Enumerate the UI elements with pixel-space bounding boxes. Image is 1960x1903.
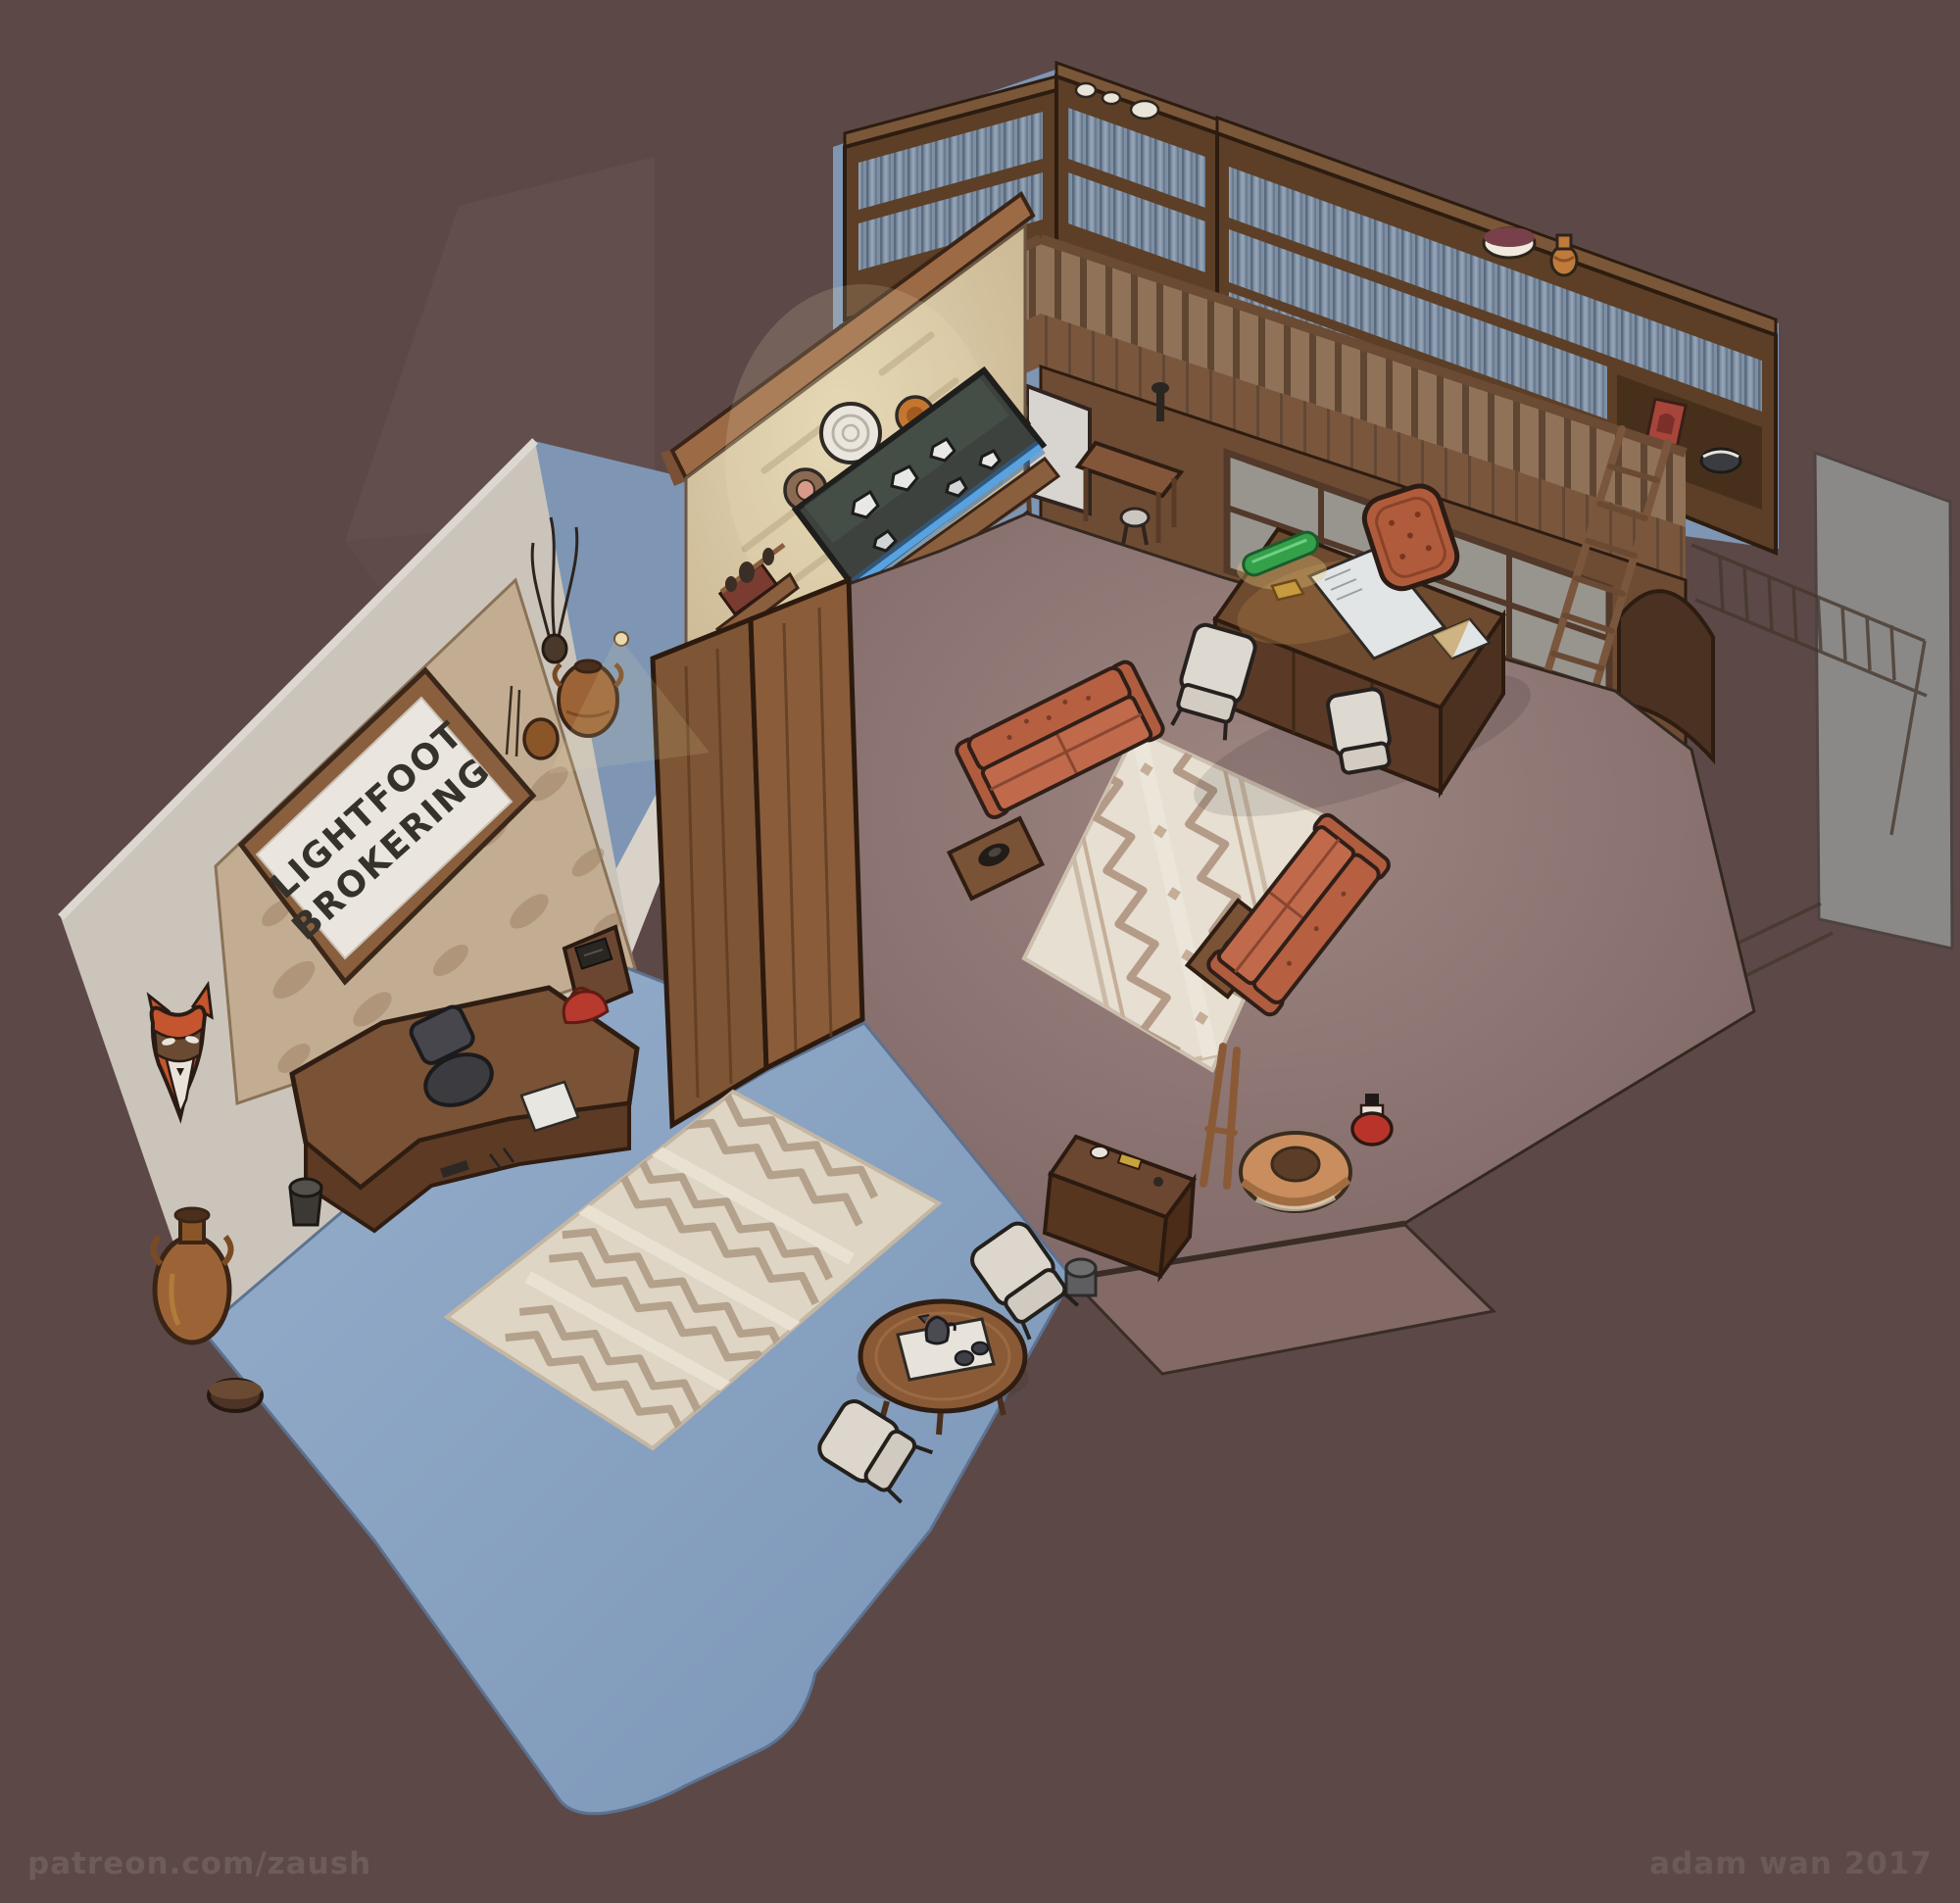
white-vessel — [1131, 101, 1158, 119]
door-left-panel — [653, 619, 766, 1125]
door-right-panel — [751, 580, 862, 1068]
white-bowl — [1102, 92, 1120, 104]
desk-lamp-head — [1151, 382, 1169, 394]
watermark-right: adam wan 2017 — [1649, 1846, 1933, 1881]
waste-bin-reception — [290, 1179, 321, 1225]
scene-svg: LIGHTFOOT BROKERING — [0, 0, 1960, 1903]
white-bowl — [1076, 83, 1096, 97]
ring-basket — [1241, 1133, 1350, 1211]
desk-lamp-stem — [1156, 390, 1164, 421]
cup — [972, 1342, 988, 1354]
watermark-left: patreon.com/zaush — [27, 1846, 371, 1881]
dark-bowl-floor — [209, 1380, 262, 1411]
maroon-bowl-top — [1484, 227, 1535, 247]
plant-pot — [543, 635, 566, 662]
sketch-gray-panel — [1815, 453, 1952, 949]
artwork-canvas: LIGHTFOOT BROKERING — [0, 0, 1960, 1903]
small-pot — [524, 719, 558, 758]
waste-bin-office — [1066, 1259, 1096, 1295]
cup — [955, 1351, 973, 1365]
